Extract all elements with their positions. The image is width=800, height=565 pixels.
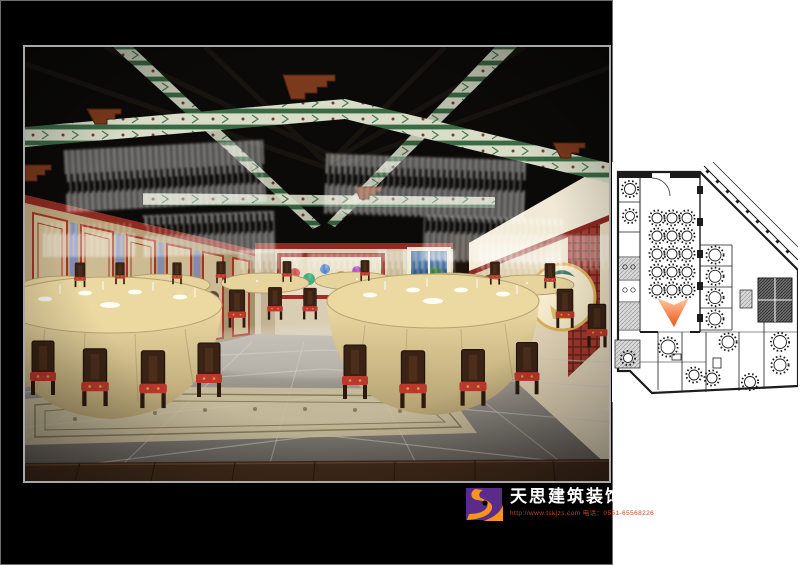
banquet-hall-rendering xyxy=(25,47,609,481)
company-logo: 天思建筑装饰 http://www.tskjzs.com 电话：0551-655… xyxy=(465,487,615,523)
floor-plan xyxy=(612,162,798,402)
company-name: 天思建筑装饰 xyxy=(510,487,654,507)
rendering-photo-frame xyxy=(23,45,611,483)
logo-dot xyxy=(482,500,487,505)
ts-logo-mark-icon xyxy=(465,487,503,521)
vignette-overlay xyxy=(25,47,609,481)
company-contact-line: http://www.tskjzs.com 电话：0551-65568226 xyxy=(510,509,654,518)
presentation-board: 天思建筑装饰 http://www.tskjzs.com 电话：0551-655… xyxy=(0,0,613,565)
